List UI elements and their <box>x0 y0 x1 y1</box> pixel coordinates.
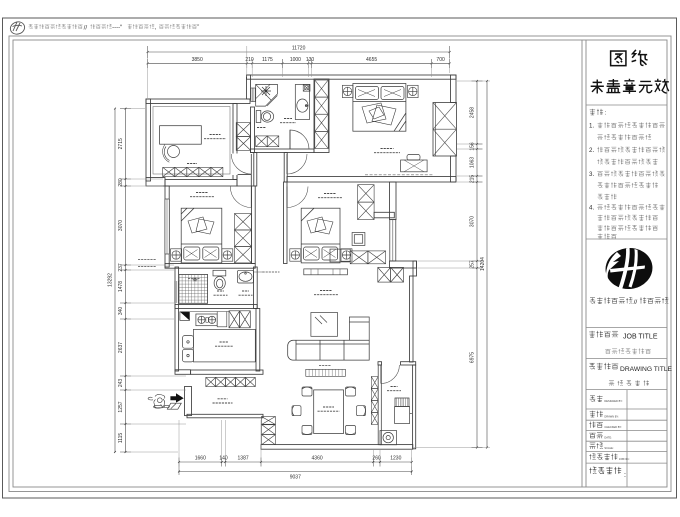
svg-text:237: 237 <box>118 263 124 272</box>
svg-text:2637: 2637 <box>118 342 124 353</box>
svg-text:JOB NO.:: JOB NO.: <box>619 457 630 461</box>
svg-text:DESIGNED BY:: DESIGNED BY: <box>604 399 623 403</box>
svg-text:9037: 9037 <box>290 475 301 481</box>
svg-text:243: 243 <box>118 379 124 388</box>
svg-text:13292: 13292 <box>108 273 114 287</box>
svg-text:1175: 1175 <box>262 57 273 63</box>
svg-text:700: 700 <box>436 57 445 63</box>
svg-text:DATE:: DATE: <box>604 436 612 440</box>
svg-text:1478: 1478 <box>118 281 124 292</box>
svg-text:260: 260 <box>372 456 381 462</box>
svg-text://: // <box>634 299 638 306</box>
svg-text:3070: 3070 <box>470 216 476 227</box>
svg-text:1063: 1063 <box>470 157 476 168</box>
svg-text:11720: 11720 <box>292 46 306 52</box>
svg-text:257: 257 <box>470 260 476 269</box>
svg-text:CHECKED BY:: CHECKED BY: <box>604 425 622 429</box>
svg-text:1000: 1000 <box>290 57 301 63</box>
svg-text:3070: 3070 <box>118 220 124 231</box>
svg-text:6975: 6975 <box>470 352 476 363</box>
svg-text:----“: ----“ <box>112 25 122 31</box>
svg-text:SCALE:: SCALE: <box>604 446 614 450</box>
svg-text:1115: 1115 <box>118 433 124 444</box>
svg-text:1230: 1230 <box>390 456 401 462</box>
svg-text:DRAWING TITLE: DRAWING TITLE <box>620 366 673 373</box>
svg-text:3.: 3. <box>589 171 594 178</box>
svg-text:140: 140 <box>219 456 228 462</box>
svg-text://: // <box>84 24 88 31</box>
svg-text:DRAWN BY:: DRAWN BY: <box>604 414 619 418</box>
svg-text:4360: 4360 <box>312 456 323 462</box>
svg-text:4655: 4655 <box>366 57 377 63</box>
svg-text:JOB TITLE: JOB TITLE <box>623 334 658 341</box>
svg-text:2715: 2715 <box>118 138 124 149</box>
svg-text:”: ” <box>197 25 199 31</box>
svg-text:340: 340 <box>118 307 124 316</box>
svg-text:1387: 1387 <box>238 456 249 462</box>
svg-text:4.: 4. <box>589 205 594 212</box>
svg-text:1257: 1257 <box>118 401 124 412</box>
svg-text:3850: 3850 <box>192 57 203 63</box>
svg-text:1.: 1. <box>589 123 594 130</box>
svg-text:130: 130 <box>306 57 315 63</box>
svg-text:280: 280 <box>118 178 124 187</box>
svg-text:2.: 2. <box>589 147 594 154</box>
svg-text:1660: 1660 <box>195 456 206 462</box>
svg-text:14204: 14204 <box>480 257 486 271</box>
svg-text::: : <box>624 472 626 479</box>
svg-text:156: 156 <box>470 142 476 151</box>
svg-text:2458: 2458 <box>470 107 476 118</box>
